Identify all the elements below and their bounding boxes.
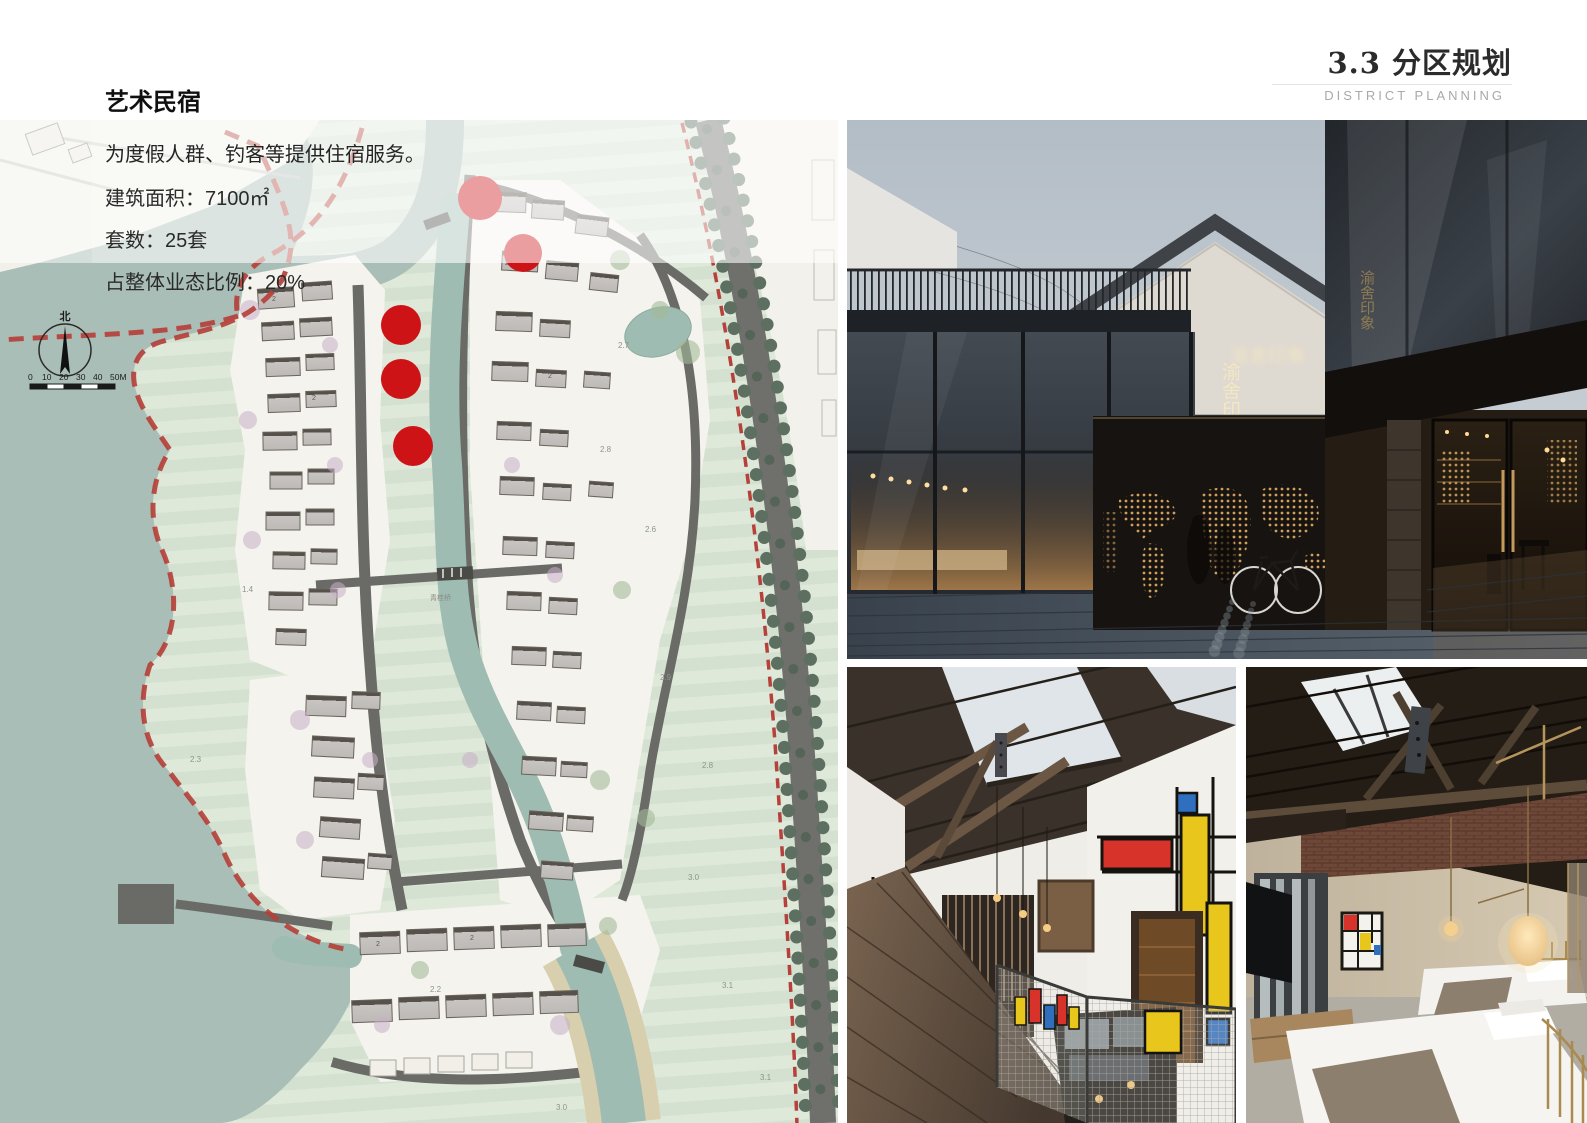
scale-tick: 50M [110, 372, 127, 382]
map-building [269, 592, 303, 611]
bnb-marker [381, 305, 421, 345]
map-building [454, 926, 495, 949]
info-heading: 艺术民宿 [105, 82, 425, 117]
map-building [311, 549, 337, 564]
vegetation-blob [676, 340, 700, 364]
map-building [496, 311, 533, 331]
floor-label: 2 [470, 935, 474, 942]
map-building [446, 994, 487, 1017]
stat-label: 套数： [105, 230, 165, 252]
elevation-label: 2.8 [600, 445, 612, 454]
map-building [512, 646, 547, 665]
scale-tick: 0 [28, 372, 33, 382]
map-building [528, 811, 563, 831]
map-building [493, 992, 534, 1015]
elevation-label: 2.8 [702, 761, 714, 770]
map-building [549, 597, 578, 614]
map-building [540, 429, 569, 446]
elevation-label: 2.9 [660, 673, 672, 682]
map-building [540, 319, 571, 338]
elevation-label: 3.1 [760, 1073, 772, 1082]
right-glass-building: 渝舍印象 [1325, 120, 1587, 630]
map-building [589, 481, 614, 498]
map-building [503, 536, 538, 555]
map-building [358, 773, 385, 790]
map-building [262, 321, 295, 341]
svg-text:渝舍印象: 渝舍印象 [1230, 345, 1306, 367]
map-building [589, 273, 619, 293]
photo-courtyard: 渝舍印象 渝舍印象 [847, 120, 1587, 659]
pavement-reflection-dot [1250, 601, 1256, 607]
map-building [276, 628, 307, 645]
elevation-label: 2.6 [645, 525, 657, 534]
mondrian-blue [1177, 793, 1197, 813]
map-building [266, 512, 300, 530]
map-building [268, 393, 301, 412]
vegetation-blob [239, 411, 257, 429]
scale-bar: 0 10 20 30 40 50M [28, 372, 127, 389]
photo-bedroom-svg [1246, 667, 1587, 1123]
pavement-reflection-dot [1229, 599, 1235, 605]
map-building [517, 701, 552, 721]
map-building [492, 361, 529, 381]
section-subtitle-en: DISTRICT PLANNING [1324, 88, 1505, 103]
stat-value: 20% [265, 272, 305, 294]
vegetation-blob [330, 582, 346, 598]
stat-ratio: 占整体业态比例：20% [105, 266, 425, 295]
stat-label: 建筑面积： [105, 188, 205, 210]
map-building [567, 815, 594, 832]
elevation-label: 2.3 [190, 755, 202, 764]
map-building [368, 853, 393, 870]
map-building [501, 924, 542, 947]
map-building [407, 928, 448, 951]
map-building [266, 357, 301, 376]
vegetation-blob [651, 301, 669, 319]
mondrian-art [1342, 913, 1382, 969]
vegetation-blob [290, 710, 310, 730]
mondrian-panel-on-mesh [1145, 1011, 1181, 1053]
map-building [561, 761, 588, 777]
scale-tick: 30 [76, 372, 86, 382]
map-building [273, 552, 305, 570]
info-panel: 艺术民宿 为度假人群、钓客等提供住宿服务。 建筑面积：7100㎡ 套数：25套 … [105, 82, 425, 308]
north-label: 北 [60, 309, 71, 323]
map-building [306, 695, 347, 716]
pavement-reflection-dot [1248, 608, 1255, 615]
photo-courtyard-svg: 渝舍印象 渝舍印象 [847, 120, 1587, 659]
map-building [321, 857, 364, 880]
photo-loft-corridor [847, 667, 1236, 1123]
map-building [522, 756, 557, 776]
vegetation-blob [411, 961, 429, 979]
pavement-reflection-dot [1245, 614, 1253, 622]
pavement-reflection-dot [1226, 606, 1233, 613]
map-building [306, 509, 334, 525]
elevation-label: 2.7 [618, 341, 630, 350]
map-building [540, 861, 573, 880]
map-building [270, 472, 302, 489]
vegetation-blob [327, 457, 343, 473]
scale-tick: 40 [93, 372, 103, 382]
map-building [300, 317, 333, 337]
floor-label: 2 [376, 941, 380, 948]
vegetation-blob [462, 752, 478, 768]
scale-tick: 10 [42, 372, 52, 382]
map-building [360, 931, 401, 954]
pavement-reflection-dot [1223, 612, 1231, 620]
map-building [557, 706, 586, 723]
map-building [497, 421, 532, 440]
bnb-marker [393, 426, 433, 466]
bnb-marker [381, 359, 421, 399]
left-roof-railing [847, 270, 1191, 314]
vegetation-blob [550, 1015, 570, 1035]
scale-tick: 20 [59, 372, 69, 382]
map-building [540, 990, 579, 1013]
map-building [314, 777, 355, 799]
vegetation-blob [322, 337, 338, 353]
stat-value: 25套 [165, 230, 207, 252]
elevation-label: 3.0 [556, 1103, 568, 1112]
slide-page: 3.3 分区规划 DISTRICT PLANNING 艺术民宿 为度假人群、钓客… [0, 0, 1587, 1123]
vegetation-blob [637, 809, 655, 827]
map-building [263, 432, 297, 451]
map-building [319, 817, 360, 840]
map-building [352, 692, 381, 710]
pavement-reflection-dot [1209, 645, 1221, 657]
photo-attic-bedroom [1246, 667, 1587, 1123]
map-building [399, 996, 440, 1019]
section-title: 3.3 分区规划 [1327, 40, 1512, 82]
map-building [507, 591, 542, 610]
map-building [306, 354, 335, 371]
photo-loft-svg [847, 667, 1236, 1123]
map-building [545, 261, 578, 282]
brick-pier [1387, 420, 1421, 630]
stat-label: 占整体业态比例： [105, 272, 265, 294]
floor-label: 2 [312, 395, 316, 402]
vegetation-blob [296, 831, 314, 849]
road-block [118, 884, 174, 924]
vegetation-blob [374, 1017, 390, 1033]
vegetation-blob [599, 917, 617, 935]
stat-building-area: 建筑面积：7100㎡ [105, 182, 425, 211]
vegetation-blob [504, 457, 520, 473]
elevation-label: 3.1 [722, 981, 734, 990]
glass-partition [1568, 863, 1587, 993]
map-building [546, 541, 575, 558]
vegetation-blob [547, 567, 563, 583]
pendant-lamp-large [1508, 916, 1548, 966]
map-building [548, 923, 587, 946]
header-divider [1272, 84, 1512, 85]
mondrian-red [1102, 839, 1172, 869]
map-building [583, 371, 610, 389]
map-building [303, 429, 331, 445]
elevation-label: 3.0 [688, 873, 700, 882]
bridge-label: 青桂桥 [430, 593, 451, 602]
map-building [306, 390, 337, 407]
sign-reflection: 渝舍印象 [1358, 270, 1376, 330]
map-building [553, 651, 582, 668]
map-building [500, 476, 535, 495]
elevation-label: 1.4 [242, 585, 254, 594]
vegetation-blob [362, 752, 378, 768]
stat-value: 7100㎡ [205, 188, 270, 210]
elevation-label: 2.2 [430, 985, 442, 994]
info-description: 为度假人群、钓客等提供住宿服务。 [105, 138, 425, 167]
vegetation-blob [590, 770, 610, 790]
vegetation-blob [613, 581, 631, 599]
stat-unit-count: 套数：25套 [105, 224, 425, 253]
pavement-reflection-dot [1233, 647, 1245, 659]
floor-label: 2 [548, 373, 552, 380]
map-building [312, 736, 355, 758]
map-building [543, 483, 572, 500]
vegetation-blob [243, 531, 261, 549]
tv [1246, 882, 1292, 983]
